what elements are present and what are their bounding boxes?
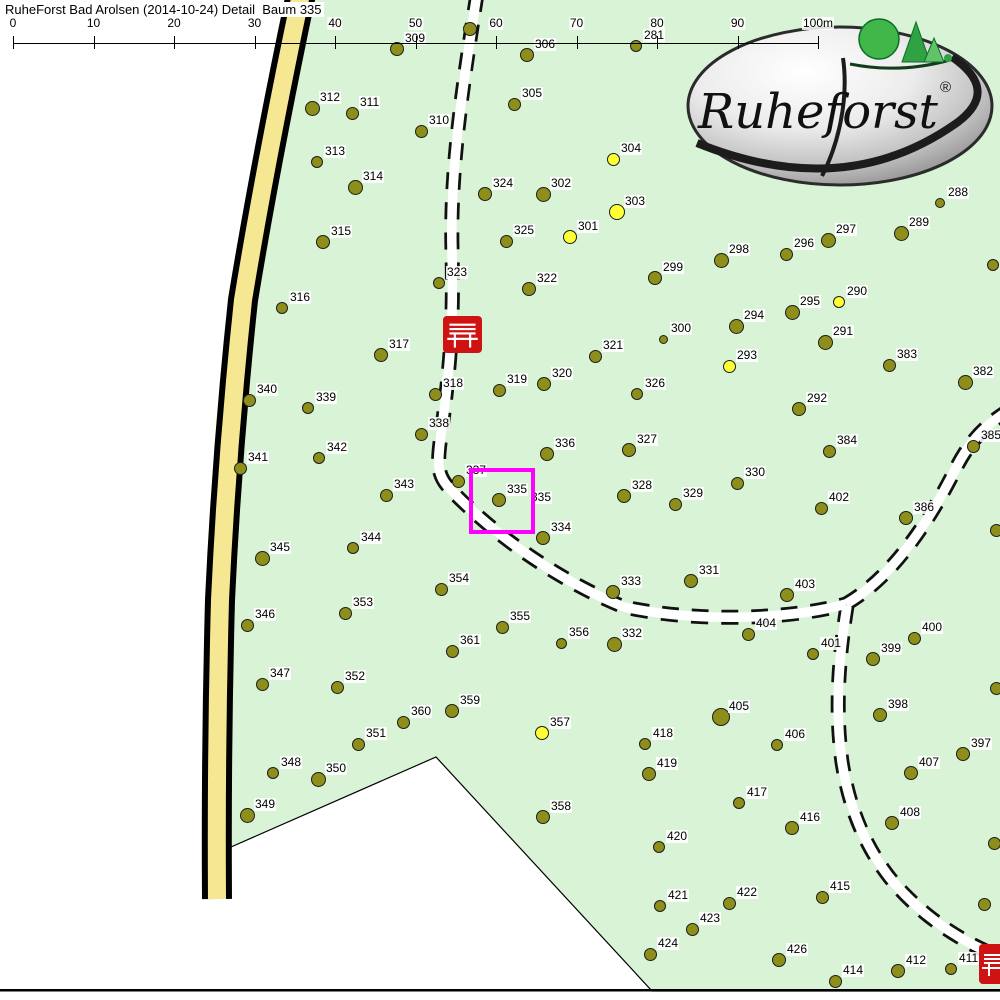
tree-dot	[742, 628, 755, 641]
tree-dot	[478, 187, 492, 201]
tree-dot	[415, 428, 428, 441]
scale-label: 0	[9, 17, 18, 30]
tree-label: 300	[670, 322, 692, 335]
tree-label: 334	[550, 521, 572, 534]
tree-label: 328	[631, 479, 653, 492]
scale-label: 80	[649, 17, 664, 30]
tree-label: 350	[325, 762, 347, 775]
tree-dot	[535, 726, 549, 740]
tree-dot	[654, 900, 666, 912]
tree-label: 404	[755, 617, 777, 630]
tree-label: 426	[786, 943, 808, 956]
scale-label: 20	[166, 17, 181, 30]
tree-dot	[785, 821, 799, 835]
tree-label: 349	[254, 798, 276, 811]
tree-label: 406	[784, 728, 806, 741]
scale-tick	[577, 36, 578, 49]
tree-label: 330	[744, 466, 766, 479]
tree-label: 414	[842, 964, 864, 977]
tree-dot	[276, 302, 288, 314]
tree-label: 313	[324, 145, 346, 158]
tree-label: 386	[913, 501, 935, 514]
tree-label: 317	[388, 338, 410, 351]
tree-dot	[617, 489, 631, 503]
tree-dot	[305, 101, 320, 116]
tree-dot	[241, 619, 254, 632]
tree-dot	[780, 588, 794, 602]
tree-dot	[684, 574, 698, 588]
tree-label: 297	[835, 223, 857, 236]
tree-label: 295	[799, 295, 821, 308]
scale-tick	[13, 36, 14, 49]
tree-label: 319	[506, 373, 528, 386]
tree-label: 314	[362, 170, 384, 183]
tree-label: 355	[509, 610, 531, 623]
tree-label: 353	[352, 596, 374, 609]
tree-label: 316	[289, 291, 311, 304]
scale-tick	[738, 36, 739, 49]
tree-label: 326	[644, 377, 666, 390]
tree-label: 342	[326, 441, 348, 454]
tree-label: 421	[667, 889, 689, 902]
tree-label: 304	[620, 142, 642, 155]
tree-label: 412	[905, 954, 927, 967]
tree-dot	[873, 708, 887, 722]
tree-label: 356	[568, 626, 590, 639]
tree-label: 401	[820, 637, 842, 650]
tree-label: 294	[743, 309, 765, 322]
tree-dot	[380, 489, 393, 502]
tree-dot	[397, 716, 410, 729]
tree-dot	[866, 652, 880, 666]
scale-label: 10	[86, 17, 101, 30]
tree-dot	[807, 648, 819, 660]
tree-label: 385	[980, 429, 1000, 442]
tree-label: 338	[428, 417, 450, 430]
tree-dot	[346, 107, 359, 120]
tree-dot	[536, 810, 550, 824]
tree-dot	[540, 447, 554, 461]
highlight-box-tree-335	[469, 468, 535, 534]
scale-tick	[94, 36, 95, 49]
tree-label: 407	[918, 756, 940, 769]
tree-label: 296	[793, 237, 815, 250]
tree-dot	[348, 180, 363, 195]
tree-label: 343	[393, 478, 415, 491]
tree-label: 329	[682, 487, 704, 500]
tree-label: 422	[736, 886, 758, 899]
tree-label: 327	[636, 433, 658, 446]
tree-label: 354	[448, 572, 470, 585]
scale-tick	[818, 36, 819, 49]
scale-label: 70	[569, 17, 584, 30]
tree-dot	[536, 187, 551, 202]
tree-dot	[302, 402, 314, 414]
tree-label: 403	[794, 578, 816, 591]
tree-dot	[313, 452, 325, 464]
tree-label: 301	[577, 220, 599, 233]
tree-dot	[606, 585, 620, 599]
tree-label: 419	[656, 757, 678, 770]
tree-label: 341	[247, 451, 269, 464]
tree-dot	[556, 638, 567, 649]
tree-dot	[537, 377, 551, 391]
tree-dot	[821, 233, 836, 248]
tree-label: 361	[459, 634, 481, 647]
tree-label: 402	[828, 491, 850, 504]
tree-dot	[978, 898, 991, 911]
tree-dot	[891, 964, 905, 978]
tree-dot	[780, 248, 793, 261]
tree-label: 351	[365, 727, 387, 740]
tree-label: 352	[344, 670, 366, 683]
scale-tick	[255, 36, 256, 49]
tree-dot	[433, 277, 445, 289]
tree-dot	[945, 963, 957, 975]
tree-label: 424	[657, 937, 679, 950]
tree-label: 416	[799, 811, 821, 824]
tree-dot	[493, 384, 506, 397]
tree-dot	[311, 156, 323, 168]
tree-dot	[415, 125, 428, 138]
tree-dot	[644, 948, 657, 961]
tree-dot	[496, 621, 509, 634]
tree-dot	[256, 678, 269, 691]
scale-tick	[174, 36, 175, 49]
tree-dot	[729, 319, 744, 334]
tree-dot	[686, 923, 699, 936]
tree-dot	[785, 305, 800, 320]
tree-label: 303	[624, 195, 646, 208]
tree-dot	[904, 766, 918, 780]
tree-dot	[935, 198, 945, 208]
tree-label: 423	[699, 912, 721, 925]
tree-dot	[659, 335, 668, 344]
tree-label: 305	[521, 87, 543, 100]
tree-dot	[894, 226, 909, 241]
scale-tick	[657, 36, 658, 49]
tree-label: 359	[459, 694, 481, 707]
tree-dot	[714, 253, 729, 268]
tree-dot	[908, 632, 921, 645]
tree-dot	[885, 816, 899, 830]
tree-label: 415	[829, 880, 851, 893]
bench-icon	[979, 944, 1000, 984]
tree-dot	[899, 511, 913, 525]
tree-label: 339	[315, 391, 337, 404]
tree-label: 383	[896, 348, 918, 361]
tree-label: 399	[880, 642, 902, 655]
tree-dot	[823, 445, 836, 458]
tree-label: 289	[908, 216, 930, 229]
tree-dot	[816, 891, 829, 904]
tree-dot	[331, 681, 344, 694]
tree-label: 405	[728, 700, 750, 713]
tree-dot	[452, 475, 465, 488]
tree-label: 299	[662, 261, 684, 274]
tree-dot	[731, 477, 744, 490]
tree-dot	[669, 498, 682, 511]
tree-label: 340	[256, 383, 278, 396]
tree-label: 397	[970, 737, 992, 750]
tree-label: 417	[746, 786, 768, 799]
tree-label: 418	[652, 727, 674, 740]
tree-label: 311	[359, 96, 380, 109]
tree-dot	[648, 271, 662, 285]
tree-label: 344	[360, 531, 382, 544]
tree-dot	[653, 841, 665, 853]
tree-label: 408	[899, 806, 921, 819]
tree-dot	[988, 837, 1000, 850]
tree-label: 420	[666, 830, 688, 843]
tree-label: 347	[269, 667, 291, 680]
tree-label: 320	[551, 367, 573, 380]
tree-label: 345	[269, 541, 291, 554]
scale-label: 100m	[802, 17, 834, 30]
tree-dot	[987, 259, 999, 271]
tree-dot	[435, 583, 448, 596]
tree-dot	[500, 235, 513, 248]
tree-dot	[772, 953, 786, 967]
tree-label: 315	[330, 225, 352, 238]
tree-label: 358	[550, 800, 572, 813]
tree-dot	[967, 440, 980, 453]
tree-dot	[609, 204, 625, 220]
tree-label: 357	[549, 716, 571, 729]
tree-dot	[642, 767, 656, 781]
tree-label: 400	[921, 621, 943, 634]
tree-label: 348	[280, 756, 302, 769]
tree-label: 346	[254, 608, 276, 621]
tree-dot	[522, 282, 536, 296]
tree-label: 321	[602, 339, 624, 352]
scale-label: 40	[327, 17, 342, 30]
tree-label: 382	[972, 365, 994, 378]
tree-label: 398	[887, 698, 909, 711]
tree-dot	[508, 98, 521, 111]
tree-dot	[589, 350, 602, 363]
scale-label: 30	[247, 17, 262, 30]
scale-tick	[335, 36, 336, 49]
tree-label: 336	[554, 437, 576, 450]
tree-dot	[607, 637, 622, 652]
tree-dot	[723, 360, 736, 373]
tree-label: 411	[958, 952, 979, 965]
tree-label: 384	[836, 434, 858, 447]
tree-label: 302	[550, 177, 572, 190]
tree-dot	[829, 975, 842, 988]
tree-label: 318	[442, 377, 464, 390]
tree-dot	[339, 607, 352, 620]
tree-dot	[956, 747, 970, 761]
map-stage: Ruheforst ® 3093062813053123113103133043…	[0, 0, 1000, 1000]
tree-dot	[818, 335, 833, 350]
tree-label: 324	[492, 177, 514, 190]
tree-dot	[316, 235, 330, 249]
tree-label: 325	[513, 224, 535, 237]
tree-dot	[771, 739, 783, 751]
tree-dot	[267, 767, 279, 779]
tree-dot	[536, 531, 550, 545]
map-title: RuheForst Bad Arolsen (2014-10-24) Detai…	[3, 2, 324, 17]
scale-tick	[416, 36, 417, 49]
tree-dot	[311, 772, 326, 787]
scale-label: 60	[488, 17, 503, 30]
tree-dot	[639, 738, 651, 750]
tree-dot	[374, 348, 388, 362]
tree-label: 298	[728, 243, 750, 256]
tree-label: 331	[698, 564, 720, 577]
tree-dot	[958, 375, 973, 390]
tree-dot	[622, 443, 636, 457]
tree-label: 322	[536, 272, 558, 285]
tree-label: 310	[428, 114, 450, 127]
tree-dot	[883, 359, 896, 372]
tree-dot	[723, 897, 736, 910]
scale-label: 90	[730, 17, 745, 30]
tree-label: 292	[806, 392, 828, 405]
tree-dot	[240, 808, 255, 823]
tree-dot	[792, 402, 806, 416]
tree-dot	[833, 296, 845, 308]
tree-dot	[445, 704, 459, 718]
tree-dot	[347, 542, 359, 554]
tree-label: 291	[832, 325, 854, 338]
tree-dot	[429, 388, 442, 401]
tree-dot	[607, 153, 620, 166]
tree-dot	[446, 645, 459, 658]
tree-dot	[815, 502, 828, 515]
tree-label: 288	[947, 186, 969, 199]
tree-dot	[234, 462, 247, 475]
scale-tick	[496, 36, 497, 49]
tree-dot	[990, 524, 1000, 537]
tree-dot	[990, 682, 1000, 695]
tree-label: 360	[410, 705, 432, 718]
tree-dot	[563, 230, 577, 244]
tree-label: 312	[319, 91, 341, 104]
tree-dot	[243, 394, 256, 407]
tree-dot	[733, 797, 745, 809]
tree-dot	[352, 738, 365, 751]
tree-dot	[255, 551, 270, 566]
tree-label: 293	[736, 349, 758, 362]
tree-dot	[631, 388, 643, 400]
bench-icon	[443, 316, 482, 353]
tree-label: 323	[446, 266, 468, 279]
tree-label: 290	[846, 285, 868, 298]
scale-label: 50	[408, 17, 423, 30]
tree-label: 332	[621, 627, 643, 640]
tree-label: 333	[620, 575, 642, 588]
